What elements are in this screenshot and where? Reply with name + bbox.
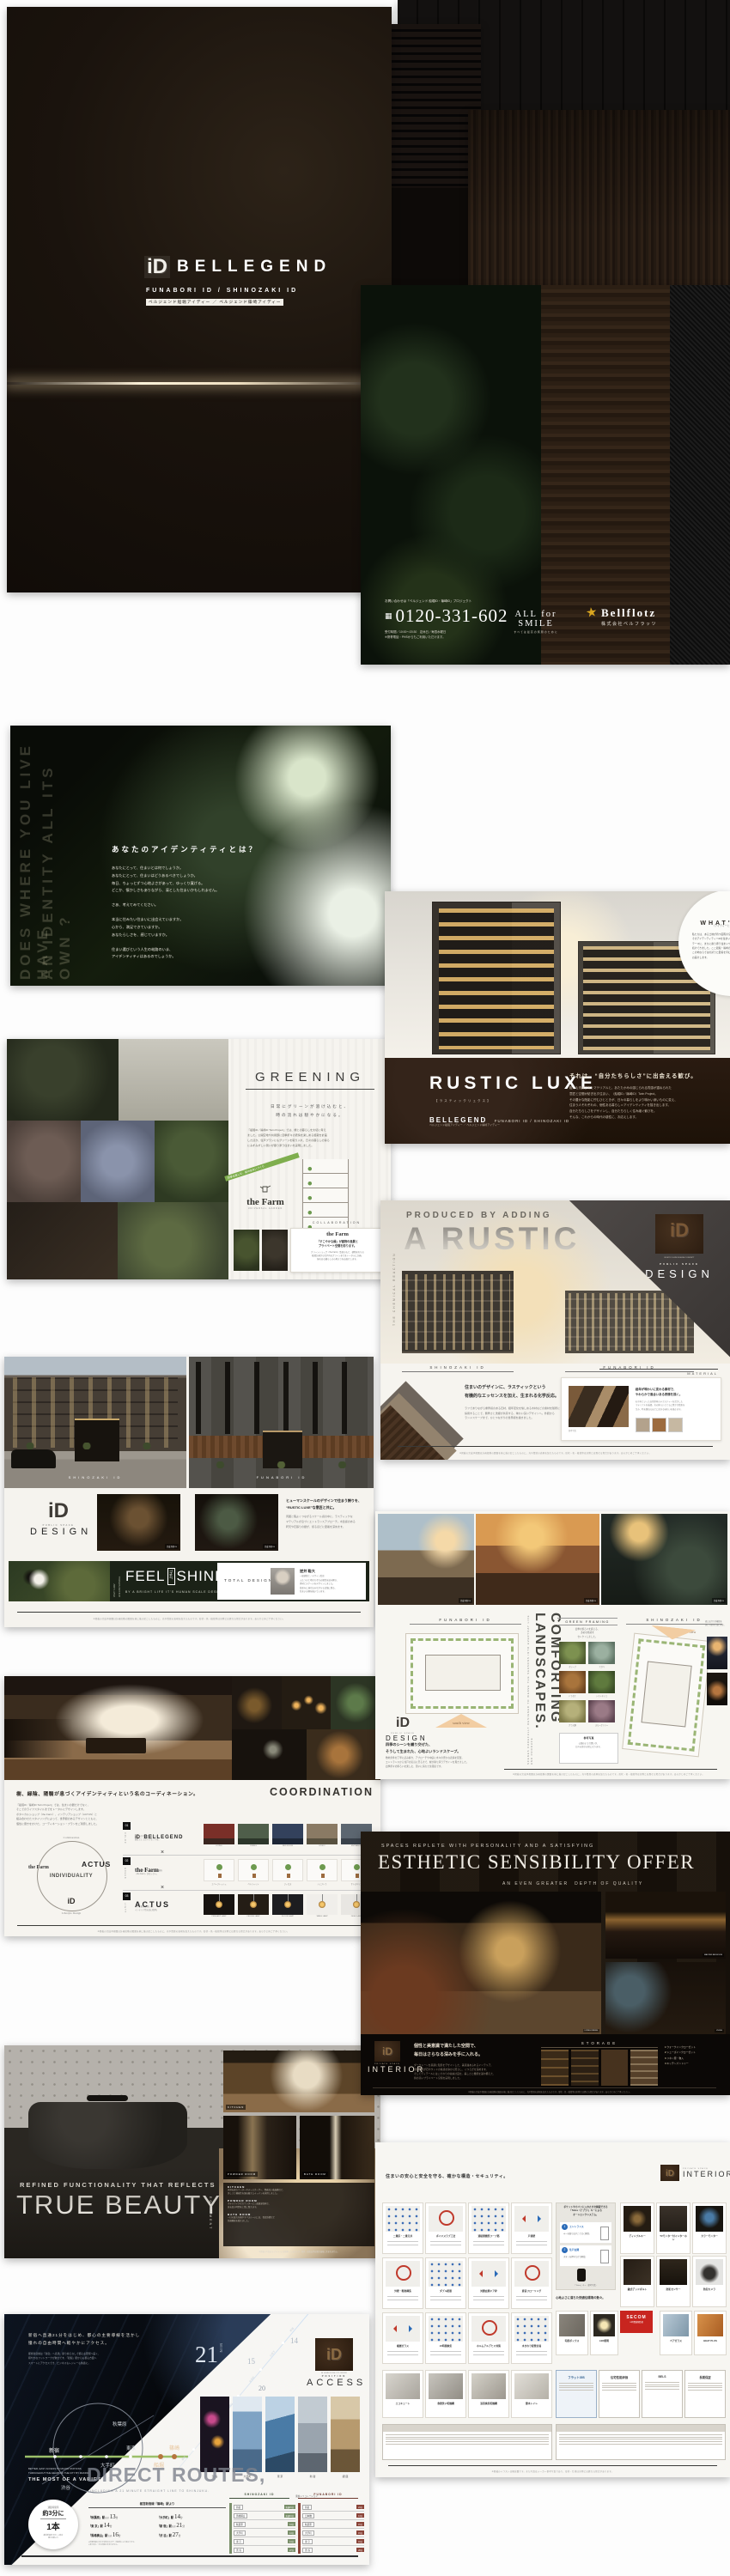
tebra-key-photo: [577, 2269, 586, 2281]
row-sub: 暮らしのパートナーになる緑を 〈the Farm〉がセレクト。: [135, 1870, 198, 1877]
copy-line: あなたにとって、住まいはどうあるべきでしょうか。: [112, 872, 219, 880]
station: 「馬喰横山」駅: [88, 2534, 107, 2537]
sec-card: TVモニター付インターホン: [656, 2202, 690, 2254]
plant-cell: オリーブ: [559, 1642, 586, 1668]
route-table-left: 新宿直通21分 馬喰横山直通16分 秋葉原13分 大手町14分 東 京14分 渋…: [229, 2503, 295, 2554]
farm-name: the Farm: [235, 1197, 295, 1207]
thumb: DINING: [238, 1824, 269, 1847]
plant-name: グラス類: [559, 1723, 586, 1727]
route-row: 新宿直通21分: [234, 2503, 295, 2512]
swatch-small: [668, 1418, 683, 1432]
photo-caption: LIVING: [715, 2029, 724, 2032]
storage-item: 2 シューズインクローゼット: [665, 2050, 725, 2054]
section-line: 快適機能を備えました。: [228, 2220, 370, 2223]
line: ランドスケープまで、ひとつながりの世界観を描きました。: [465, 1416, 560, 1421]
luxe-line: その豊かな陰影に佇むひとときが、日々の暮らしをより味わい深いものに変え、: [569, 1097, 678, 1103]
list-note: ※乗り換え・待ち時間は含まれません。: [88, 2543, 226, 2546]
step-num: 2: [562, 2247, 568, 2253]
cert-bars: [599, 2383, 639, 2391]
unit: 分: [182, 2525, 185, 2528]
photo: [707, 1673, 727, 1705]
diagram-arc-bottom: Lifestyle Design: [46, 1911, 97, 1915]
coordination-spread: 樹、緑陰、陽翳が息づくアイデンティティという名のコーディネーション。 COORD…: [4, 1676, 380, 1936]
plant-photo: [272, 1859, 303, 1881]
phone-icon: ▦: [385, 611, 392, 621]
photo: [593, 2314, 615, 2336]
photo: 完成予想CG: [476, 1514, 599, 1605]
collab-body3: 緑のある暮らしの心地よさをお届けします。: [291, 1257, 384, 1261]
landscapes-spread: 完成予想CG 完成予想CG 完成予想CG FUNABORI ID south v…: [375, 1511, 730, 1779]
cert-label: 長期保証: [685, 2375, 725, 2379]
closet-photo: [601, 2050, 629, 2086]
multiply-sign: ×: [161, 1850, 164, 1856]
item-text: ウォークインクローゼット: [666, 2045, 696, 2049]
land-body: 敷地条件を丁寧に読み解き、アプローチや中庭に木々の豊かな表情を配置。 エントラン…: [386, 1757, 469, 1770]
line: 住まいのデザインに、ラスティックという: [465, 1384, 559, 1393]
storage-list: 1 ウォークインクローゼット 2 シューズインクローゼット 3 リネン庫・物入 …: [665, 2043, 725, 2065]
line: スマートにアクセスでき、ビジネスもレジャーも快適に。: [28, 2361, 100, 2366]
minutes: 14: [174, 2513, 180, 2520]
step-desc: ボタンを押すだけで解錠。: [563, 2255, 587, 2258]
equip-card: 節水トイレ: [511, 2370, 552, 2418]
thumb: エバーフレッシュ: [204, 1859, 234, 1886]
row-num: 02: [123, 1857, 131, 1865]
interior-head: 個性と美意識で満たした空間で、 毎日はさらなる深みを手に入れる。: [414, 2043, 483, 2059]
luxe-line: 自分たちらしさをデザインし、自分たちらしく住み継ぐ歓びを。: [569, 1109, 678, 1115]
row-sub: ラフに配して愉しむ、 インテリア性の高い照明。: [135, 1906, 198, 1913]
entrance: [75, 1419, 119, 1461]
card-caption: ペアガラス: [662, 2339, 690, 2342]
list-item: 「大手町」駅 14分: [157, 2513, 226, 2520]
card-caption: 食器洗い乾燥機: [428, 2402, 464, 2405]
route-minutes: 20: [259, 2385, 265, 2392]
route-row: 渋 谷27分: [234, 2546, 295, 2554]
id-mark-icon: iD: [396, 1716, 410, 1730]
garden-photo: [9, 1561, 110, 1601]
storage-item: 3 リネン庫・物入: [665, 2057, 725, 2060]
photo: [471, 2373, 506, 2399]
bottom-heavy-rule: [21, 2555, 358, 2557]
desc-bar: [430, 2300, 461, 2300]
photo: [663, 2314, 689, 2336]
diagram: [514, 2206, 549, 2232]
route-time: 16分: [356, 2539, 364, 2543]
card-caption: 鎌式デッドボルト: [623, 2287, 652, 2291]
cover-sub-jp: ベルジェンド船堀アイディー ／ ベルジェンド篠崎アイディー: [146, 299, 283, 306]
thumb: TABLE LAMP: [307, 1894, 338, 1917]
station: 「秋葉原」駅: [88, 2516, 105, 2519]
plant-photo: [588, 1700, 615, 1722]
plant-photo: [588, 1671, 615, 1693]
diagram: [471, 2261, 506, 2287]
route-dot: [192, 2448, 195, 2451]
plan-label-left: FUNABORI ID: [410, 1618, 521, 1625]
tebra-step: 1 エントランス キーを取り出すことなく解錠。: [560, 2222, 611, 2243]
identity-copy: あなたにとって、住まいとは何でしょうか。 あなたにとって、住まいはどうあるべきで…: [112, 865, 219, 961]
route-to: 秋葉原: [234, 2522, 246, 2527]
floor: [303, 1188, 348, 1203]
land-head: 四季のシーンを織り交ぜた、 そうして生まれた、心地よいランドスケープ。: [386, 1741, 460, 1755]
sec-card: カラーモニター: [692, 2202, 727, 2254]
coord-row: 02 GREEN the Farm 暮らしのパートナーになる緑を 〈the Fa…: [123, 1856, 379, 1891]
desc-bar: [387, 2354, 418, 2355]
photo-label: KITCHEN: [226, 2105, 246, 2110]
via: 直通: [105, 2518, 109, 2519]
that-word: THAT: [167, 1568, 175, 1585]
greening-title: GREENING: [246, 1070, 374, 1090]
window-slits: [196, 1362, 367, 1434]
section: BATH ROOM 一日の疲れを癒やすバスルームには、保温浴槽など 快適機能を備…: [228, 2213, 370, 2223]
door-icon: [600, 2227, 609, 2240]
banner-vertical-2: LIFE AND NATURAL: [119, 1566, 121, 1597]
esthetic-eyebrow: SPACES REPLETE WITH PERSONALITY AND A SA…: [381, 1844, 594, 1849]
back-cover: お問い合わせは「ベルジェンド 船堀iD・篠崎iD」プロジェクト ▦ 0120-3…: [361, 285, 730, 665]
card-caption: HEAT PLUS: [697, 2339, 724, 2342]
phone-hours2: ※携帯電話・PHSからもご利用いただけます。: [385, 635, 446, 639]
photo: [81, 1121, 155, 1202]
material-card: 参考写真 経年が味わいに変わる素材で、 やわらかで風合いある表情を描く。 石や木…: [561, 1377, 721, 1441]
thumb: LIVING: [204, 1824, 234, 1847]
line: オートロックシステム。: [557, 2214, 615, 2217]
access-list: 都営新宿線「篠崎」駅より 「秋葉原」駅直通 13分 「大手町」駅 14分 「東 …: [88, 2501, 226, 2546]
facade-spread: SHINOZAKI ID FUNABORI ID iD PUBLIC SPACE…: [4, 1357, 374, 1627]
copy-line: 住まい選びという人生の岐路のいま、: [112, 946, 219, 954]
spec-card: 遮音フローリング: [511, 2257, 552, 2309]
card-caption: ダブル配筋: [428, 2289, 464, 2293]
body-line: 軒天や石張りの壁が、帰るほどに愛着を深めます。: [286, 1525, 370, 1530]
kitchen-photo: KITCHEN: [223, 2050, 374, 2112]
route-to: 新宿: [234, 2505, 243, 2510]
comfort-card: HEAT PLUS: [694, 2311, 727, 2355]
row-logo: the Farm 暮らしのパートナーになる緑を 〈the Farm〉がセレクト。: [135, 1861, 198, 1876]
luxe-body: 粗くも洗練されたマテリアルと、あたたかみの感じられる質感が重ねられた 意匠と空間…: [569, 1085, 678, 1121]
line: ラフでありながら重厚感のある石材、経年変化を愉しめる木材などの素材を随所に: [465, 1406, 560, 1412]
sec-photo: [624, 2206, 651, 2232]
thumb: CEILING LAMP: [238, 1894, 269, 1917]
route-time: 15分: [356, 2530, 364, 2535]
spec-card: 複層ガラス: [382, 2312, 423, 2364]
floor: [303, 1159, 348, 1174]
thumb: BED ROOM: [272, 1824, 303, 1847]
specs-logo: iD PRIVATE SPACE INTERIOR: [660, 2165, 730, 2181]
multiply-sign: ×: [161, 1885, 164, 1891]
copy-line: アイデンティティはあるのでしょうか。: [112, 953, 219, 961]
footer-caption: ※掲載の完成予想図は計画段階の図面を基に描き起こしたものに、光や質感の表現を加え…: [56, 1929, 331, 1933]
footer-caption: ※掲載の完成予想図は計画段階の図面を基に描き起こしたものに、光や質感の表現を加え…: [513, 1772, 719, 1776]
badge-num: 1本: [40, 2518, 66, 2532]
list-item: 「東 京」駅 14分: [88, 2522, 157, 2529]
photo: [559, 2314, 585, 2336]
coord-row: 03 LIGHT ACTUS ラフに配して愉しむ、 インテリア性の高い照明。 P…: [123, 1891, 379, 1925]
route-row: 大手町14分: [234, 2529, 295, 2537]
slogan-jp: すべては最高の笑顔のために: [496, 630, 575, 634]
facade-label-right: FUNABORI ID: [239, 1475, 325, 1479]
plant-photo: [559, 1671, 586, 1693]
photo-caption: 完成予想CG: [584, 1598, 598, 1603]
diagram: [429, 2316, 463, 2342]
via: 直通: [107, 2536, 112, 2537]
cover-sub-en: FUNABORI ID / SHINOZAKI ID: [146, 288, 298, 294]
photo: 完成予想CG: [378, 1514, 474, 1605]
station-label: 東京: [126, 2445, 137, 2451]
rustic-luxe-spread: WHAT'S iD 〈アイディーとは？〉 私たちは、ある土地が持つ固有の空気感を…: [385, 891, 730, 1144]
company-en: Bellflotz: [601, 606, 657, 620]
sec-photo: [660, 2206, 687, 2232]
equip-card: 食器洗い乾燥機: [425, 2370, 466, 2418]
total-design-card: TOTAL DESIGN 逆井 聡大 一級建築士／デザイン監修 ふたつの土地それ…: [217, 1563, 366, 1600]
thumb: シェフレラ: [307, 1859, 338, 1886]
portrait-photo: [271, 1568, 295, 1595]
copy-line: どこか、懐かしさもありながら、凛とした住まいかもしれません。: [112, 887, 219, 895]
footer-rule: [398, 1446, 713, 1447]
greening-sub1: 日常にグリーンが溶け込むと、: [246, 1104, 374, 1109]
planting: [194, 1461, 368, 1468]
logo-big: INTERIOR: [683, 2170, 730, 2178]
list-title: 都営新宿線「篠崎」駅より: [88, 2501, 226, 2508]
thumb-caption: DINING: [238, 1845, 269, 1847]
route-time: 13分: [288, 2522, 295, 2526]
footer-caption: ※掲載の完成予想図は計画段階の図面を基に描き起こしたものに、光や質感の表現を加え…: [39, 1617, 339, 1620]
id-logo-square: iD: [660, 2165, 679, 2181]
footer-caption: ※掲載のイラストは概念図です。また写真はメーカー参考写真であり、形状・仕様は実際…: [418, 2470, 687, 2473]
line: 憧れの自由時間へ軽やかにアクセス。: [28, 2339, 140, 2347]
green-framing-title: GREEN FRAMING: [557, 1618, 617, 1625]
diagram-arc-top: Collaboration: [46, 1836, 97, 1839]
route-to: 秋葉原: [302, 2522, 314, 2527]
copy-line: 本当に住みたい住まいに出会えていますか。: [112, 916, 219, 924]
powder-photo: POWDER ROOM: [223, 2116, 296, 2179]
cover-glow-line: [7, 382, 392, 385]
whats-sub: 〈アイディーとは？〉: [690, 924, 730, 927]
desc-bar: [430, 2296, 461, 2297]
route-row: 渋 谷28分: [302, 2546, 364, 2554]
front-cover: iD BELLEGEND FUNABORI ID / SHINOZAKI ID …: [7, 7, 392, 592]
beauty-side-vertical: EQUIPMENT: [209, 2196, 212, 2234]
section-line: 身支度の時間を上質に整えます。: [228, 2206, 370, 2209]
spec-table: [556, 2424, 726, 2460]
desc-bar: [430, 2351, 461, 2352]
card-caption: 水まわり配管計画: [514, 2344, 550, 2348]
big-unit: MIN: [219, 2343, 223, 2353]
photo: [118, 1202, 228, 1279]
desc-bar: [516, 2245, 547, 2245]
coord-headline: 樹、緑陰、陽翳が息づくアイデンティティという名のコーディネーション。: [16, 1789, 198, 1797]
table-title-left: SHINOZAKI ID: [229, 2493, 289, 2499]
star-icon: ★: [585, 604, 599, 621]
copy-line: 毎日、ちょっとずつ心地よさがあって、ゆっくり寛げる。: [112, 880, 219, 888]
plant-name: ドラセナ: [559, 1694, 586, 1698]
route-time: 13分: [356, 2513, 364, 2518]
photo: [262, 1230, 288, 1271]
sec-card: 防犯センサー: [656, 2256, 690, 2307]
card-caption: 戸境壁: [514, 2234, 550, 2238]
luxe-line: そんな、これからの時代の感性に、お応えします。: [569, 1115, 678, 1121]
line: エントランスから住戸の窓辺に至るまで、緑が寄り添うデザインを貫きました。: [386, 1761, 469, 1765]
access-body: 都営新宿線は「新宿」へ直通。乗り換えなしで都心主要駅へ届く、 軽やかなフットワー…: [28, 2352, 100, 2366]
footer-caption: ※掲載の完成予想図は計画段階の図面を基に描き起こしたものに、光や質感の表現を加え…: [415, 1451, 696, 1455]
facade-copy: ヒューマンスケールのデザインで住まう誇りを、 “RUSTIC LUXE”な意匠と…: [286, 1498, 370, 1529]
coord-row: 01 COLOR iD BELLEGEND 私たちが手掛ける住まいに、 個性とし…: [123, 1820, 379, 1856]
row-tag: LIGHT: [124, 1903, 126, 1913]
brand-jp: ベルジェンド船堀アイディー ／ ベルジェンド篠崎アイディー: [429, 1123, 500, 1127]
vertical-question-2: AN IDENTITY ALL ITS OWN ?: [40, 732, 74, 980]
line: 四季折々の移ろいを楽しむ、潤いに満ちた住環境です。: [386, 1765, 469, 1770]
photo: [514, 2373, 549, 2399]
interior-big: INTERIOR: [368, 2065, 407, 2074]
tebra-step: 2 住戸玄関 ボタンを押すだけで解錠。: [560, 2245, 611, 2266]
cert-box: 長期保証: [684, 2370, 726, 2418]
route-time: 直通16分: [284, 2513, 295, 2518]
swatch-small: [636, 1418, 650, 1432]
thumb-caption: PENDANT LAMP: [204, 1916, 234, 1917]
city-photo: [298, 2397, 327, 2472]
photo: [386, 2373, 420, 2399]
desc-bar: [516, 2354, 547, 2355]
diagram-id: iD: [63, 1898, 80, 1905]
closet-photo: [571, 2050, 599, 2086]
spec-card: 水まわり配管計画: [511, 2312, 552, 2364]
site-plan-left: [405, 1633, 519, 1714]
floor: [303, 1203, 348, 1218]
equip-card: 浴室換気乾燥機: [468, 2370, 509, 2418]
thumb: フィカス: [272, 1859, 303, 1886]
route-row: 日本橋13分: [302, 2512, 364, 2520]
spec-card: 外壁・断熱構造: [382, 2257, 423, 2309]
beauty-title: TRUE BEAUTY: [16, 2190, 222, 2221]
spec-card: 二重床・二重天井: [382, 2202, 423, 2254]
dr-sub: INCLUDING A 21 MINUTE STRAIGHT LINE TO S…: [90, 2489, 210, 2493]
secom-box: SECOM 24時間遠隔監視: [620, 2311, 653, 2333]
farm-sub: UNIVERSAL GARDEN: [235, 1207, 295, 1210]
minutes: 16: [113, 2531, 119, 2538]
brown-band: RUSTIC LUXE 【ラスティックリュクス】 BELLEGEND FUNAB…: [385, 1058, 730, 1144]
id-mark-icon: iD: [144, 256, 170, 278]
swatch-small: [652, 1418, 666, 1432]
side-note: 夜には灯りが植栽を 美しく照らし出します。: [705, 1621, 727, 1627]
line: 生み、時を重ねるほどに深まる味わいを描きます。: [636, 1408, 684, 1412]
route-minutes: 15: [247, 2357, 255, 2366]
brand-sub: FUNABORI ID / SHINOZAKI ID: [495, 1119, 569, 1123]
desc-bar: [473, 2351, 504, 2352]
table-header: [557, 2425, 725, 2432]
card-caption: ディンプルキー: [623, 2234, 652, 2238]
closet-photo: [630, 2050, 658, 2086]
route-time: 14分: [288, 2539, 295, 2543]
rustic-eyebrow: PRODUCED BY ADDING: [406, 1211, 552, 1220]
line: セレクトしました。: [557, 1636, 617, 1639]
unit: 分: [116, 2517, 119, 2519]
id-mark-icon: iD: [382, 2041, 392, 2062]
sec-photo: [696, 2259, 723, 2285]
route-row: 東 京16分: [302, 2537, 364, 2546]
photo-caption: 完成予想CG: [165, 1544, 179, 1549]
comfort-head: 心地よさに満ちた快適住環境の数々。: [556, 2295, 605, 2300]
collab-head2: プライベート空間を彩ります。: [291, 1243, 384, 1248]
windows: [439, 908, 554, 1049]
ldk-photo: [4, 1676, 232, 1780]
card-caption: 節水トイレ: [514, 2402, 550, 2405]
material-photo: [569, 1386, 629, 1427]
route-time: 27分: [288, 2548, 295, 2552]
coord-rows: 01 COLOR iD BELLEGEND 私たちが手掛ける住まいに、 個性とし…: [123, 1820, 379, 1925]
spec-card: 戸境壁: [511, 2202, 552, 2254]
thumb-caption: フィカス: [272, 1882, 303, 1886]
line: 新宿へ直通21分をはじめ、都心の主要導線を活かし: [28, 2331, 140, 2339]
beauty-text-panel: KITCHEN 天然石調カウンターやディスポーザー、食器洗い乾燥機など、 美しさ…: [223, 2183, 374, 2246]
esthetic-title: ESTHETIC SENSIBILITY OFFER: [378, 1851, 695, 1874]
photo-caption: 完成予想CG: [459, 1598, 472, 1603]
position-logo: iD AT HOME IN THE CITY CENTER POSITION A…: [307, 2338, 362, 2388]
card-caption: 宅配ボックス: [558, 2339, 586, 2342]
plant-cell: アガベ: [588, 1642, 615, 1668]
planting: [9, 1443, 181, 1449]
thumb: STUDY: [307, 1824, 338, 1847]
city-photo: [200, 2397, 229, 2472]
city-photo: [331, 2397, 360, 2472]
badge-big: 約3分に: [28, 2509, 78, 2518]
diagram: [386, 2316, 420, 2342]
mat-body: ラフでありながら重厚感のある石材、経年変化を愉しめる木材などの素材を随所に 採用…: [465, 1406, 560, 1421]
copy-line: さあ、考えてみてください。: [112, 902, 219, 909]
route-row: 大手町15分: [302, 2529, 364, 2537]
card-caption: エコキュート: [385, 2402, 421, 2405]
item-text: キッチンパントリー: [666, 2062, 688, 2065]
phone-row: ▦ 0120-331-602: [385, 605, 508, 627]
line: 美しく照らし出します。: [705, 1625, 727, 1628]
brochure-collage: iD BELLEGEND FUNABORI ID / SHINOZAKI ID …: [0, 0, 730, 2576]
diagram: [429, 2206, 463, 2232]
beauty-caption: ※掲載の写真はモデルルームを撮影したものです。家具・調度品等は販売価格に含まれま…: [223, 2250, 374, 2253]
door-icon: [600, 2250, 609, 2263]
route-to: 大手町: [302, 2530, 314, 2536]
city-caption: 東 京: [265, 2475, 295, 2478]
thumb-caption: TABLE LAMP: [307, 1916, 338, 1917]
plant-name: シマトネリコ: [588, 1694, 615, 1698]
city-caption: 新 宿: [298, 2475, 327, 2478]
head-line: ヒューマンスケールのデザインで住まう誇りを、: [286, 1498, 370, 1504]
room-photo: [272, 1824, 303, 1844]
luxe-line: 意匠と空間が紡ぎ出す住まい、〈船堀iD／篠崎iD〉Twin Project。: [569, 1091, 678, 1097]
spec-card: ボイドスラブ工法: [425, 2202, 466, 2254]
card-caption: ホルムアルデヒド対策: [471, 2344, 507, 2348]
card-caption: 複層ガラス: [385, 2344, 421, 2348]
station-label: 秋葉原: [113, 2421, 127, 2427]
feel-word: FEEL: [125, 1568, 166, 1585]
list-item: 「新 宿」駅直通 21分: [157, 2522, 226, 2529]
corner-small: PUBLIC SPACE: [648, 1262, 710, 1266]
diagram-center: INDIVIDUALITY: [44, 1874, 99, 1879]
route-time: 15分: [356, 2522, 364, 2526]
route-to: 新宿: [302, 2505, 312, 2510]
whats-body: 私たちは、ある土地が持つ固有の空気感を大切に、 そのアイデンティティ＝iDを住ま…: [692, 933, 730, 960]
living-photo: LIVING: [605, 1962, 726, 2034]
route-minutes: 14: [290, 2336, 298, 2345]
card-caption: 遮音フローリング: [514, 2289, 550, 2293]
step-desc: キーを取り出すことなく解錠。: [563, 2232, 591, 2235]
photo: 完成予想CG: [97, 1494, 180, 1551]
cert-bars: [642, 2382, 682, 2390]
station-label: 渋谷: [61, 2484, 71, 2491]
diagram-actus: ACTUS: [82, 1860, 111, 1868]
plant-name: アガベ: [588, 1665, 615, 1668]
section: POWDER ROOM ホテルライクなカウンターと三面鏡裏収納で、 身支度の時間…: [228, 2199, 370, 2209]
line: 質の高いプライベート空間を実現しました。: [414, 2076, 496, 2081]
desc-bar: [387, 2351, 418, 2352]
closet-photo: [541, 2050, 569, 2086]
equip-card: エコキュート: [382, 2370, 423, 2418]
furniture-silhouette: [86, 1738, 146, 1753]
plan-building: [641, 1661, 691, 1727]
